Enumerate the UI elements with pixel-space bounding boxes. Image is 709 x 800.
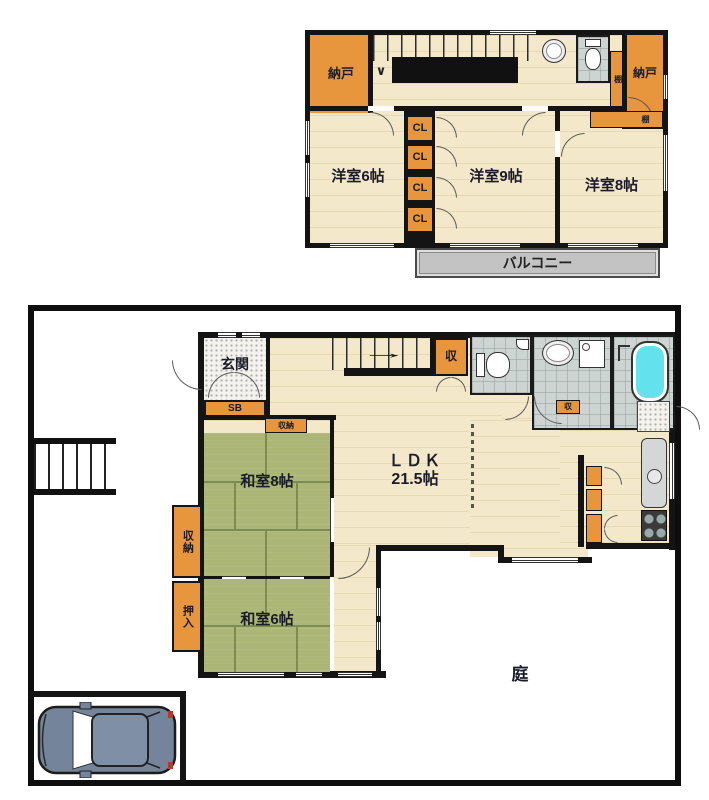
staircase-base	[344, 368, 430, 376]
washbasin-icon	[542, 39, 566, 63]
floor-plan: 納戸 ∨ 棚 納戸 棚 洋室6帖	[0, 0, 709, 800]
kitchen-cupboard-1	[586, 466, 602, 486]
window	[218, 332, 236, 338]
window	[296, 672, 322, 677]
wall	[578, 455, 584, 547]
tatami-line	[296, 625, 298, 672]
window	[218, 672, 284, 677]
corner-sink-icon	[516, 339, 529, 350]
staircase-void	[392, 57, 518, 83]
exterior-steps	[34, 438, 116, 495]
balcony-label: バルコニー	[415, 248, 660, 278]
toilet-room-1f	[470, 335, 532, 395]
wall	[378, 545, 504, 551]
wall	[266, 332, 270, 420]
garden-label: 庭	[495, 662, 545, 688]
window	[338, 672, 372, 677]
closet-cl-3-label: CL	[407, 176, 433, 201]
kitchen-cupboard-3	[586, 514, 602, 543]
stairs-up-arrow-glyph: →	[360, 345, 408, 362]
ldk-label-line1: ＬＤＫ	[388, 453, 442, 471]
ldk-label: ＬＤＫ 21.5帖	[355, 448, 475, 494]
japanese-room-6-label: 和室6帖	[204, 608, 330, 632]
hall-closet-label: 収納	[265, 418, 307, 433]
shelf-room8-label: 棚	[628, 111, 663, 128]
japanese-room-8	[204, 433, 330, 577]
tatami-line	[234, 625, 236, 672]
toilet-bowl-icon	[486, 352, 510, 378]
oshiire-closet-label: 押入	[172, 581, 202, 652]
washbasin-icon	[542, 340, 574, 366]
window	[663, 75, 668, 99]
shower-icon	[618, 345, 630, 361]
closet-cl-2-label: CL	[407, 145, 433, 170]
toilet-tank-icon	[476, 353, 485, 377]
sliding-partition	[471, 424, 474, 512]
window	[242, 332, 260, 338]
washer-drain-icon	[582, 343, 590, 351]
ldk-label-line2: 21.5帖	[391, 471, 438, 489]
stove-icon	[641, 510, 667, 541]
second-floor: 納戸 ∨ 棚 納戸 棚 洋室6帖	[305, 30, 668, 248]
window	[376, 588, 381, 616]
washroom-storage-label: 収	[556, 400, 580, 414]
bathtub-icon	[631, 341, 669, 403]
car-icon	[36, 702, 178, 778]
washing-machine-icon	[579, 340, 605, 368]
window	[305, 163, 310, 197]
window	[490, 30, 536, 35]
window	[663, 135, 668, 191]
sink-icon	[647, 469, 662, 484]
closet-cl-4-label: CL	[407, 207, 433, 232]
tatami-line	[265, 529, 267, 577]
stairs-down-arrow: ∨	[372, 59, 390, 83]
car-top-view	[36, 702, 178, 778]
sliding-door-gap	[330, 498, 334, 542]
west-closet-label: 収納	[172, 505, 202, 578]
window	[330, 243, 394, 248]
western-room-9-label: 洋室9帖	[437, 111, 555, 243]
parking-wall	[180, 691, 186, 783]
window	[305, 121, 310, 155]
tatami-line	[204, 529, 330, 531]
kitchen-sink-counter	[641, 438, 667, 508]
window	[512, 557, 578, 563]
stair-storage-label: 収	[434, 338, 468, 376]
western-room-6-label: 洋室6帖	[310, 111, 406, 243]
side-door-arc	[676, 406, 700, 430]
western-room-8-label: 洋室8帖	[560, 128, 663, 243]
stairs-up-arrow: →	[352, 344, 382, 364]
closet-cl-1-label: CL	[407, 116, 433, 141]
window	[669, 443, 675, 499]
toilet-bowl-icon	[585, 48, 601, 70]
toilet-tank-icon	[585, 39, 601, 47]
kitchen-cupboard-2	[586, 489, 602, 511]
storage-room-left-label: 納戸	[310, 35, 372, 113]
japanese-room-8-label: 和室8帖	[204, 470, 330, 494]
window	[376, 622, 381, 650]
side-porch	[637, 401, 670, 432]
wall	[586, 543, 672, 549]
toilet-room-2f	[576, 35, 610, 83]
parking-wall	[30, 691, 186, 697]
